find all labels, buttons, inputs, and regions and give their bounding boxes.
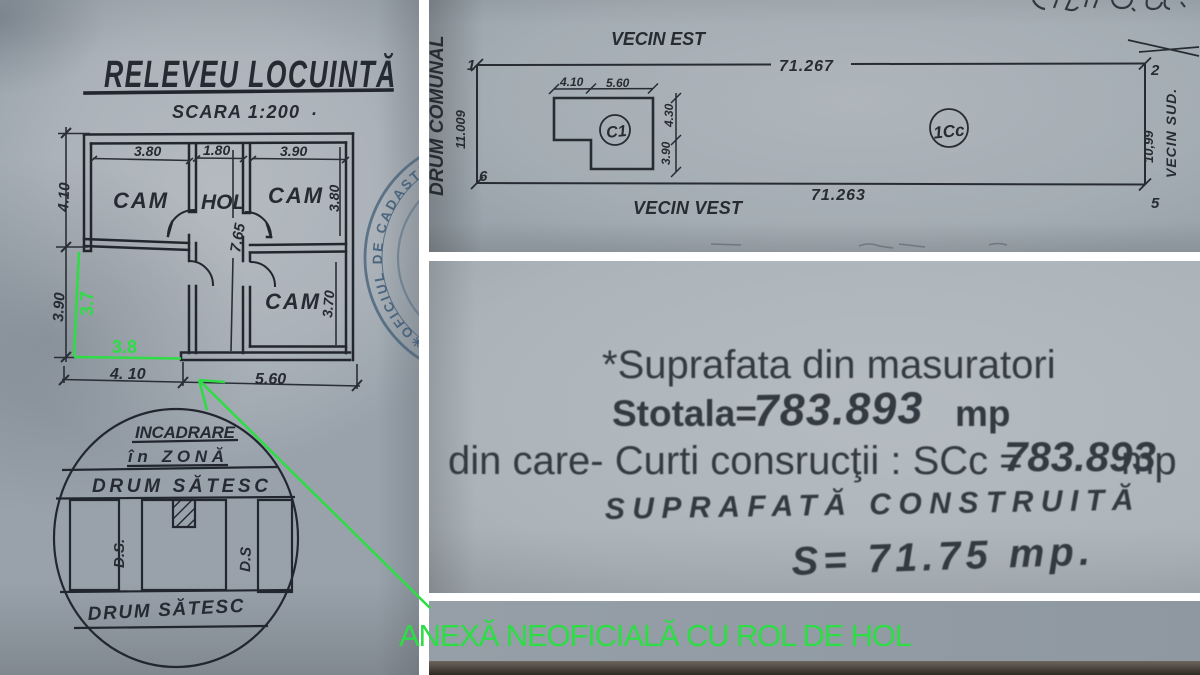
svg-text:3.7: 3.7 [77, 291, 97, 316]
svg-text:3.8: 3.8 [112, 337, 137, 357]
svg-text:ANEXĂ NEOFICIALĂ CU ROL DE HOL: ANEXĂ NEOFICIALĂ CU ROL DE HOL [399, 618, 913, 653]
